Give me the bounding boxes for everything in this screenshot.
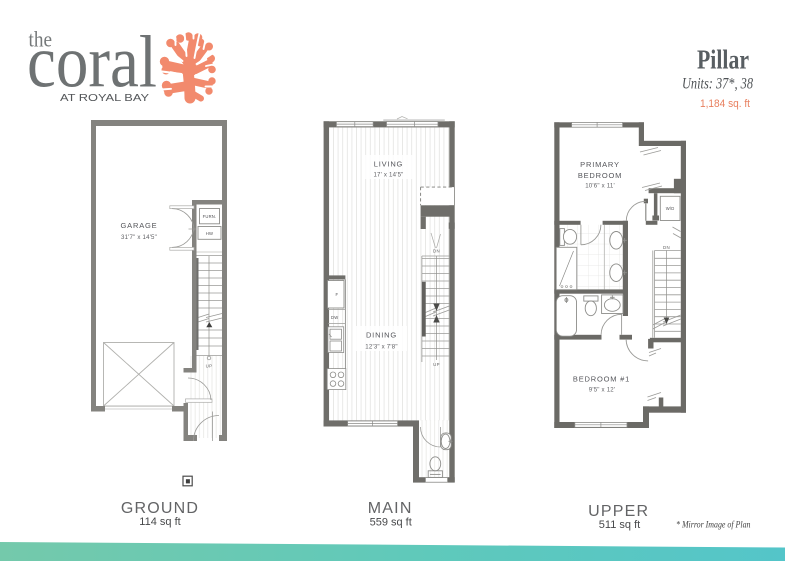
svg-text:MAIN: MAIN: [368, 500, 413, 517]
svg-text:9'5" x 12': 9'5" x 12': [589, 387, 615, 394]
svg-text:GROUND: GROUND: [121, 500, 199, 517]
svg-text:DN: DN: [433, 249, 440, 254]
svg-text:BEDROOM #1: BEDROOM #1: [573, 374, 630, 383]
svg-text:114 sq ft: 114 sq ft: [139, 516, 180, 528]
svg-text:* Mirror Image of Plan: * Mirror Image of Plan: [676, 520, 751, 531]
svg-text:PRIMARY: PRIMARY: [580, 160, 620, 169]
svg-text:AT ROYAL BAY: AT ROYAL BAY: [60, 92, 149, 104]
svg-text:12'3" x 7'8": 12'3" x 7'8": [365, 344, 397, 351]
svg-text:10'6" x 11': 10'6" x 11': [585, 183, 615, 190]
svg-text:FURN.: FURN.: [203, 214, 217, 219]
svg-text:HW: HW: [206, 231, 213, 236]
svg-text:DW: DW: [331, 315, 338, 320]
svg-text:LIVING: LIVING: [374, 160, 403, 169]
svg-text:W/D: W/D: [666, 206, 675, 211]
svg-text:511 sq ft: 511 sq ft: [599, 519, 640, 531]
svg-text:1,184 sq. ft: 1,184 sq. ft: [700, 98, 750, 110]
svg-text:559 sq ft: 559 sq ft: [370, 517, 412, 529]
svg-text:Units: 37*, 38: Units: 37*, 38: [682, 76, 753, 93]
svg-text:Pillar: Pillar: [697, 45, 749, 75]
svg-text:GARAGE: GARAGE: [121, 221, 158, 230]
svg-text:UP: UP: [206, 364, 213, 369]
svg-text:DN: DN: [663, 245, 670, 250]
svg-text:17' x 14'5": 17' x 14'5": [373, 172, 403, 179]
svg-text:F: F: [336, 292, 339, 297]
svg-text:BEDROOM: BEDROOM: [578, 171, 622, 180]
svg-text:UP: UP: [433, 362, 440, 367]
svg-text:DINING: DINING: [366, 331, 397, 340]
svg-text:31'7" x 14'5": 31'7" x 14'5": [121, 234, 157, 241]
svg-text:UPPER: UPPER: [588, 503, 649, 520]
